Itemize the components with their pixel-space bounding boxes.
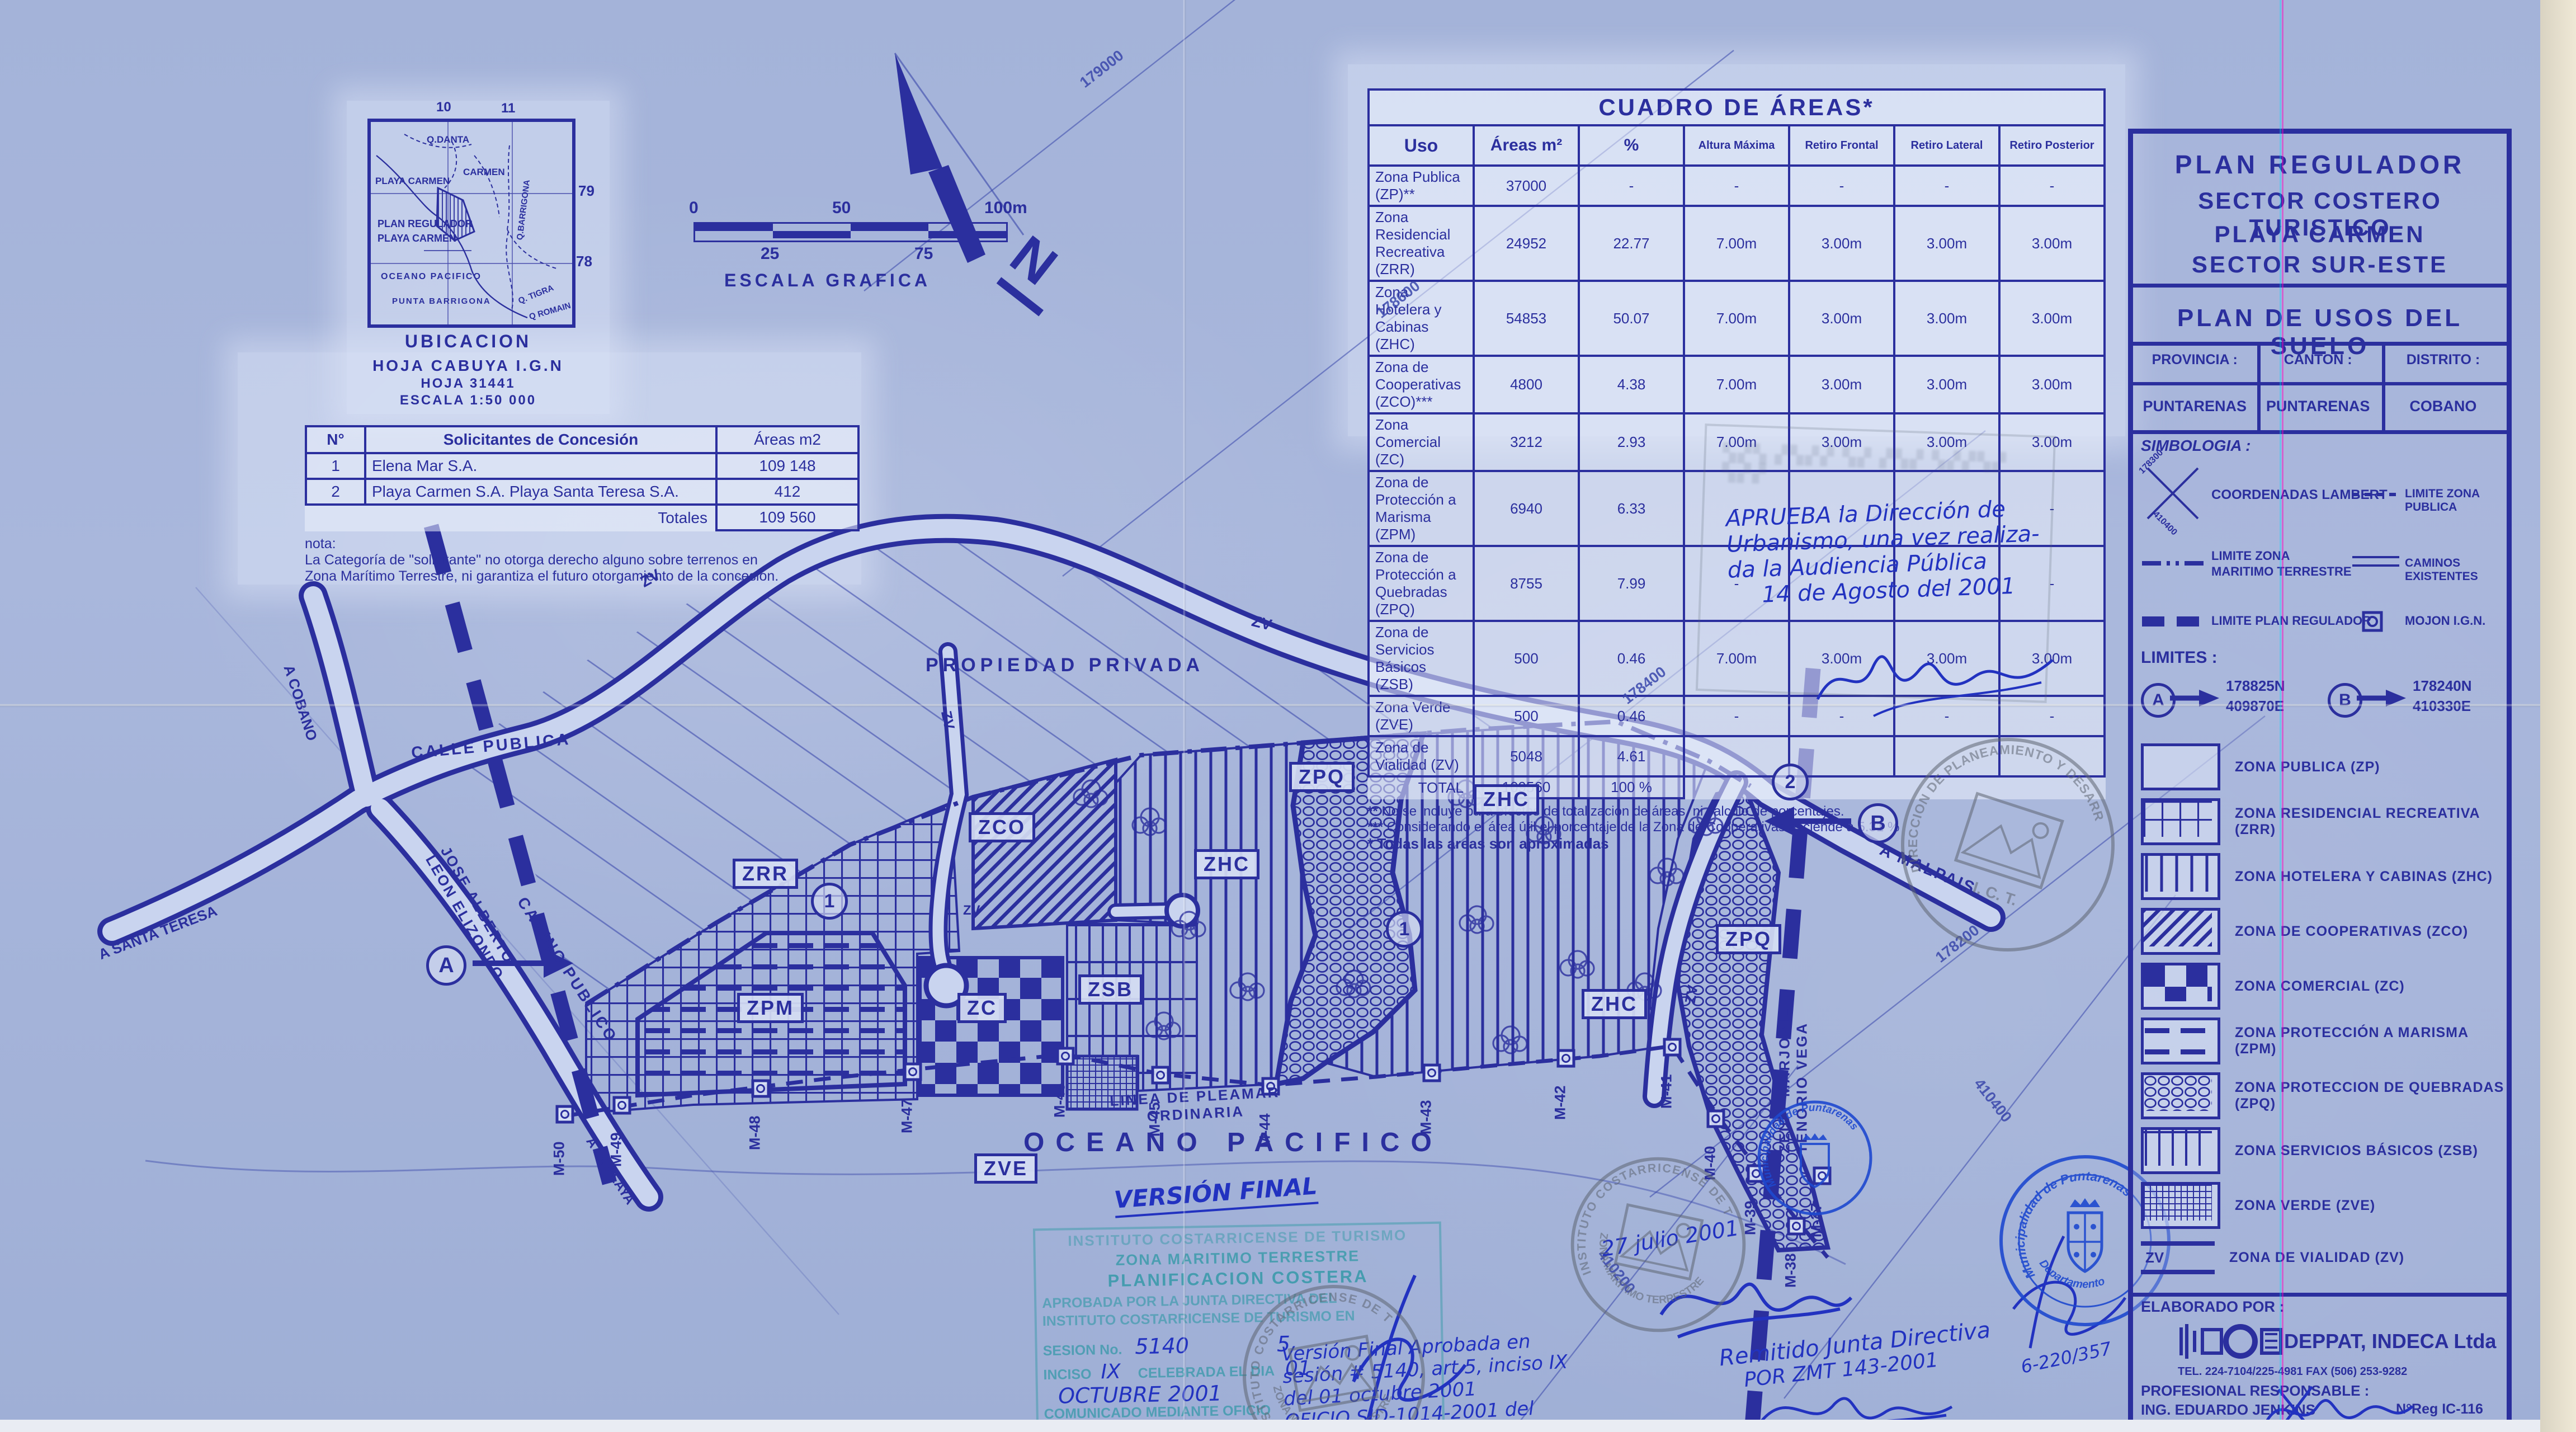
mojon-label: M-47 [899,1099,916,1172]
cell-area: 8755 [1474,546,1579,621]
zone-tag-zhc-2: ZHC [1474,784,1539,814]
cell-area: 3212 [1474,413,1579,471]
cell-rp: 3.00m [1999,206,2105,281]
legend-item-zsb: ZONA SERVICIOS BÁSICOS (ZSB) [2141,1127,2478,1174]
title-block: PLAN REGULADOR SECTOR COSTERO TURISTICO … [2128,129,2512,1428]
province-label: PROVINCIA : [2133,352,2256,368]
cell-pct: 50.07 [1579,281,1684,356]
cell-alt: 7.00m [1684,206,1789,281]
inset-scale: ESCALA 1:50 000 [367,393,569,408]
inset-playa-carmen: PLAYA CARMEN [375,176,450,187]
col-name: Solicitantes de Concesión [365,426,716,453]
cell-name: Elena Mar S.A. [365,453,716,479]
col-retiro-frontal: Retiro Frontal [1789,125,1894,166]
mojon-label: M-43 [1418,1100,1435,1173]
mojon-label: M-41 [1658,1075,1676,1147]
mojon-label: M-49 [608,1133,625,1205]
table-row: 1 Elena Mar S.A. 109 148 [306,453,858,479]
zone-tag-zpq-1: ZPQ [1289,762,1355,792]
parcel-circle-1a: 1 [811,883,848,920]
cell-uso: Zona de Vialidad (ZV) [1369,736,1474,776]
legend-item-zv: ZV ZONA DE VIALIDAD (ZV) [2141,1237,2404,1278]
col-altura: Altura Máxima [1684,125,1789,166]
legend-swatch-zpm [2141,1018,2220,1064]
cell-alt: - [1684,166,1789,206]
inset-caption: UBICACION [367,331,569,352]
table-row: 2 Playa Carmen S.A. Playa Santa Teresa S… [306,479,858,505]
note-text: Todas las areas son aproximadas [1377,835,1608,852]
col-retiro-lateral: Retiro Lateral [1894,125,1999,166]
province-value: PUNTARENAS [2133,398,2256,415]
limit-circle-a: A [426,945,466,986]
cell-alt: 7.00m [1684,281,1789,356]
symbol-lzmt-label-1: LIMITE ZONA [2211,549,2290,563]
scale-tick-25: 25 [761,244,779,263]
cell-rl: 3.00m [1894,206,1999,281]
elaborado-name: DEPPAT, INDECA Ltda [2284,1330,2496,1353]
limit-b-north: 178240N [2413,677,2472,695]
inciso-value: IX [1101,1360,1121,1384]
inset-plan-1: PLAN REGULADOR [378,218,473,230]
col-uso: Uso [1369,125,1474,166]
legend-swatch-zc [2141,963,2220,1010]
legend-label: ZONA HOTELERA Y CABINAS (ZHC) [2235,869,2493,885]
cell-alt [1684,736,1789,776]
table-row: Zona de Cooperativas (ZCO)***48004.387.0… [1369,356,2105,413]
inset-tick-10: 10 [436,100,451,115]
zone-tag-zrr: ZRR [733,859,798,889]
cell-area: 5048 [1474,736,1579,776]
inset-tick-11: 11 [501,101,515,116]
scale-tick-75: 75 [914,244,933,263]
blueprint-sheet: N 0 50 100m 25 75 ESCALA GRAFICA [0,0,2576,1432]
symbol-lzp-label: LIMITE ZONA PUBLICA [2405,487,2507,514]
table-row: Zona Publica (ZP)**37000----- [1369,166,2105,206]
canton-value: PUNTARENAS [2256,398,2379,415]
session-label: SESION No. [1042,1342,1122,1359]
existing-roads-icon [2352,554,2399,569]
area-table-title: CUADRO DE ÁREAS* [1369,89,2105,125]
inset-sheet-name: HOJA CABUYA I.G.N [345,357,591,375]
road-label-zv-4: ZV [963,903,980,918]
cell-pct: 4.38 [1579,356,1684,413]
table-total-row: Totales 109 560 [306,505,858,530]
district-label: DISTRITO : [2380,352,2507,368]
cell-uso: Zona de Protección a Quebradas (ZPQ) [1369,546,1474,621]
stamp-center-text: I. C. T. [1971,879,2020,909]
cell-pct: 6.33 [1579,471,1684,546]
inset-q-danta: Q.DANTA [427,134,469,145]
cell-uso: Zona Publica (ZP)** [1369,166,1474,206]
legend-swatch-zco [2141,908,2220,955]
legend-item-zrr: ZONA RESIDENCIAL RECREATIVA (ZRR) [2141,798,2507,845]
cell-rf: 3.00m [1789,206,1894,281]
legend-swatch-zhc [2141,853,2220,900]
legend-swatch-zpq [2141,1072,2220,1119]
limit-a-north: 178825N [2226,677,2285,695]
cell-rp: 3.00m [1999,356,2105,413]
cell-uso: Zona Residencial Recreativa (ZRR) [1369,206,1474,281]
cell-area: 24952 [1474,206,1579,281]
cell-area: 109 148 [716,453,858,479]
total-label: Totales [365,505,716,530]
inset-plan-2: PLAYA CARMEN [378,233,456,244]
paper-edge-right [2540,0,2576,1432]
map-label-oceano-pacifico: OCEANO PACIFICO [1023,1127,1443,1158]
zone-tag-zhc-1: ZHC [1194,849,1259,879]
scale-bar-caption: ESCALA GRAFICA [724,270,931,291]
parcel-circle-2: 2 [1772,764,1809,800]
cell-pct: 2.93 [1579,413,1684,471]
cell-name: Playa Carmen S.A. Playa Santa Teresa S.A… [365,479,716,505]
inciso-label: INCISO [1043,1367,1092,1383]
mojon-icon [2361,610,2384,633]
svg-text:Municipalidad de Puntarenas: Municipalidad de Puntarenas [2013,1169,2135,1282]
limits-title: LIMITES : [2141,648,2218,667]
zv-swatch-text: ZV [2141,1249,2215,1266]
col-n: N° [306,426,365,453]
mojon-label: M-50 [551,1142,568,1214]
zone-tag-zhc-3: ZHC [1582,989,1647,1019]
svg-text:Municipalidad de Puntarenas: Municipalidad de Puntarenas [1759,1102,1860,1190]
municipal-stamp-small: Municipalidad de Puntarenas [1753,1096,1876,1219]
zone-tag-zve: ZVE [974,1153,1037,1184]
legend-swatch-zrr [2141,798,2220,845]
note-text: No se incluye para efectos de totalizaci… [1381,804,1844,819]
cell-pct: - [1579,166,1684,206]
legend-item-zpm: ZONA PROTECCIÓN A MARISMA (ZPM) [2141,1018,2507,1064]
cell-area: 500 [1474,696,1579,736]
legend-label: ZONA DE VIALIDAD (ZV) [2229,1250,2404,1266]
legend-label: ZONA SERVICIOS BÁSICOS (ZSB) [2235,1143,2478,1159]
total-label: TOTAL [1369,776,1474,798]
legend-label: ZONA VERDE (ZVE) [2235,1198,2375,1214]
inset-tick-78: 78 [576,253,592,270]
ict-round-stamp-2: INSTITUTO COSTARRICENSE DE TURISMO ZONA … [1549,1135,1767,1354]
scale-tick-50: 50 [832,199,851,218]
district-value: COBANO [2380,398,2507,415]
inset-sheet-number: HOJA 31441 [367,376,569,392]
cell-rf: 3.00m [1789,281,1894,356]
location-inset: Q.DANTA CARMEN PLAYA CARMEN PLAN REGULAD… [367,119,575,328]
zone-tag-zpq-2: ZPQ [1716,924,1781,954]
total-pct: 100 % [1579,776,1684,798]
road-label-zv-5: ZV [1681,983,1701,1005]
zmt-limit-icon [2142,560,2204,567]
cell-alt: 7.00m [1684,356,1789,413]
note-mark: *** [1367,819,1383,835]
deppat-logo [2178,1320,2290,1363]
parcel-circle-1b: 1 [1386,911,1423,948]
mojon-label: M-46 [1051,1084,1069,1156]
legend-label: ZONA DE COOPERATIVAS (ZCO) [2235,924,2468,940]
title-line-1: PLAN REGULADOR [2133,149,2507,180]
cell-uso: Zona Comercial (ZC) [1369,413,1474,471]
legend-swatch-zve [2141,1182,2220,1229]
scale-tick-0: 0 [689,199,699,218]
stamp-arc-text: ZONA MARITIMO TERRESTRE [1586,1231,1712,1316]
legend-item-zco: ZONA DE COOPERATIVAS (ZCO) [2141,908,2468,955]
legend-label: ZONA RESIDENCIAL RECREATIVA (ZRR) [2235,805,2507,838]
map-label-propiedad-privada: PROPIEDAD PRIVADA [926,654,1204,676]
legend-label: ZONA PUBLICA (ZP) [2235,759,2380,775]
legend-item-zc: ZONA COMERCIAL (ZC) [2141,963,2405,1010]
legend-label: ZONA PROTECCION DE QUEBRADAS (ZPQ) [2235,1080,2507,1112]
paper-edge-bottom [0,1420,2540,1432]
col-retiro-posterior: Retiro Posterior [1999,125,2105,166]
cell-n: 2 [306,479,365,505]
mojon-label: M-45 [1147,1103,1164,1175]
cell-rl: 3.00m [1894,281,1999,356]
symbol-caminos-label: CAMINOS EXISTENTES [2405,557,2507,583]
legend-swatch-zv: ZV [2141,1237,2215,1278]
title-line-3: PLAYA CARMEN [2133,221,2507,248]
cell-n: 1 [306,453,365,479]
cell-uso: Zona de Protección a Marisma (ZPM) [1369,471,1474,546]
zone-tag-zpm: ZPM [737,993,804,1023]
table-row: Zona Hotelera y Cabinas (ZHC)5485350.077… [1369,281,2105,356]
cell-area: 37000 [1474,166,1579,206]
inset-carmen: CARMEN [463,167,505,178]
concession-note-1: La Categoría de "solicitante" no otorga … [305,552,860,568]
scale-tick-100: 100m [984,199,1027,218]
symbol-mojon-label: MOJON I.G.N. [2405,614,2485,628]
cell-pct: 7.99 [1579,546,1684,621]
cell-area: 54853 [1474,281,1579,356]
concession-table: N° Solicitantes de Concesión Áreas m2 1 … [305,425,860,585]
cell-rl: 3.00m [1894,356,1999,413]
paper-fold-horizontal [0,704,2576,708]
cell-rl: - [1894,166,1999,206]
inset-oceano: OCEANO PACIFICO [381,272,482,282]
scale-bar: 0 50 100m 25 75 ESCALA GRAFICA [693,199,1029,299]
zone-tag-zc: ZC [957,993,1007,1023]
inset-tick-79: 79 [578,182,595,200]
cell-area: 500 [1474,621,1579,696]
mojon-label: M-48 [747,1116,764,1189]
symbol-lpr-label: LIMITE PLAN REGULADOR [2211,614,2371,628]
col-areas: Áreas m² [1474,125,1579,166]
col-area: Áreas m2 [716,426,858,453]
cell-alt: - [1684,696,1789,736]
legend-item-zve: ZONA VERDE (ZVE) [2141,1182,2375,1229]
cell-rf: - [1789,166,1894,206]
cell-pct: 22.77 [1579,206,1684,281]
public-zone-limit-icon [2352,492,2399,497]
note-mark: * [1367,835,1373,852]
mojon-label: M-42 [1552,1086,1569,1158]
zone-tag-zsb: ZSB [1078,974,1143,1005]
svg-text:ZONA MARITIMO TERRESTRE: ZONA MARITIMO TERRESTRE [1586,1231,1712,1316]
stamp-arc-text: Municipalidad de Puntarenas [1759,1102,1860,1190]
inset-punta: PUNTA BARRIGONA [392,296,491,306]
total-value: 109 560 [716,505,858,530]
session-value: 5140 [1135,1334,1189,1359]
scale-bar-body [693,222,1008,242]
scanner-artifact-line [2282,0,2284,1432]
zone-tag-zco: ZCO [969,812,1035,842]
legend-swatch-zsb [2141,1127,2220,1174]
canton-label: CANTON : [2256,352,2379,368]
legend-label: ZONA PROTECCIÓN A MARISMA (ZPM) [2235,1025,2507,1057]
cell-pct: 4.61 [1579,736,1684,776]
legend-item-zhc: ZONA HOTELERA Y CABINAS (ZHC) [2141,853,2493,900]
concession-note-label: nota: [305,536,860,552]
legend-label: ZONA COMERCIAL (ZC) [2235,978,2405,995]
note-mark: ** [1367,804,1378,819]
title-line-4: SECTOR SUR-ESTE [2133,251,2507,278]
cell-rp: - [1999,166,2105,206]
paper-fold-vertical [1183,0,1186,1432]
legend-swatch-zp [2141,743,2220,790]
concession-note-2: Zona Marítimo Terrestre, ni garantiza el… [305,568,860,585]
note-text: Considerando el área útil el porcentaje … [1387,819,1900,835]
cell-rp: 3.00m [1999,281,2105,356]
road-label-zv-3: ZV [937,709,958,731]
cell-rf: 3.00m [1789,356,1894,413]
legend-item-zpq: ZONA PROTECCION DE QUEBRADAS (ZPQ) [2141,1072,2507,1119]
elaborado-tel: TEL. 224-7104/225-4981 FAX (506) 253-928… [2178,1365,2407,1378]
cell-uso: Zona de Servicios Básicos (ZSB) [1369,621,1474,696]
cell-area: 6940 [1474,471,1579,546]
col-pct: % [1579,125,1684,166]
handwritten-approval-note: APRUEBA la Dirección de Urbanismo, una v… [1725,495,2042,609]
cell-area: 412 [716,479,858,505]
cell-uso: Zona de Cooperativas (ZCO)*** [1369,356,1474,413]
cell-uso: Zona Verde (ZVE) [1369,696,1474,736]
table-row: Zona Residencial Recreativa (ZRR)2495222… [1369,206,2105,281]
legend-item-zp: ZONA PUBLICA (ZP) [2141,743,2380,790]
stamp-arc-text: Municipalidad de Puntarenas [2013,1169,2135,1282]
province-table: PROVINCIA : CANTON : DISTRITO : PUNTAREN… [2133,342,2507,430]
plan-limit-icon [2142,616,2204,627]
elaborado-label: ELABORADO POR : [2141,1298,2285,1316]
cell-area: 4800 [1474,356,1579,413]
